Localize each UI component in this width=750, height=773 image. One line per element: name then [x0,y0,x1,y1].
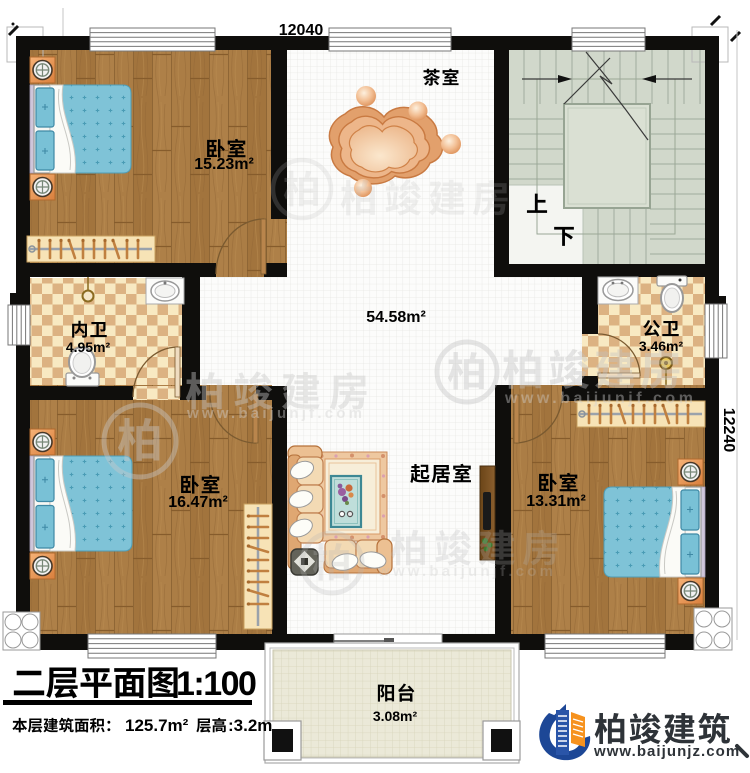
svg-text:www.baijunjf.com: www.baijunjf.com [504,390,696,407]
svg-text:3.08m²: 3.08m² [373,708,418,724]
svg-text::3.2m: :3.2m [228,716,272,735]
svg-text:1:100: 1:100 [176,665,256,703]
svg-text:www.baijunjf.com: www.baijunjf.com [186,405,365,422]
svg-text:54.58m²: 54.58m² [366,309,426,326]
svg-text:12240: 12240 [720,408,737,453]
svg-text:15.23m²: 15.23m² [194,156,254,173]
svg-text:12040: 12040 [279,22,324,39]
svg-text:125.7m²: 125.7m² [125,716,189,735]
svg-text:www.baijunjf.com: www.baijunjf.com [377,563,556,580]
svg-text:4.95m²: 4.95m² [66,339,111,355]
svg-text:16.47m²: 16.47m² [168,494,228,511]
svg-text:13.31m²: 13.31m² [526,493,586,510]
svg-text:www.baijunjz.com: www.baijunjz.com [593,743,740,760]
